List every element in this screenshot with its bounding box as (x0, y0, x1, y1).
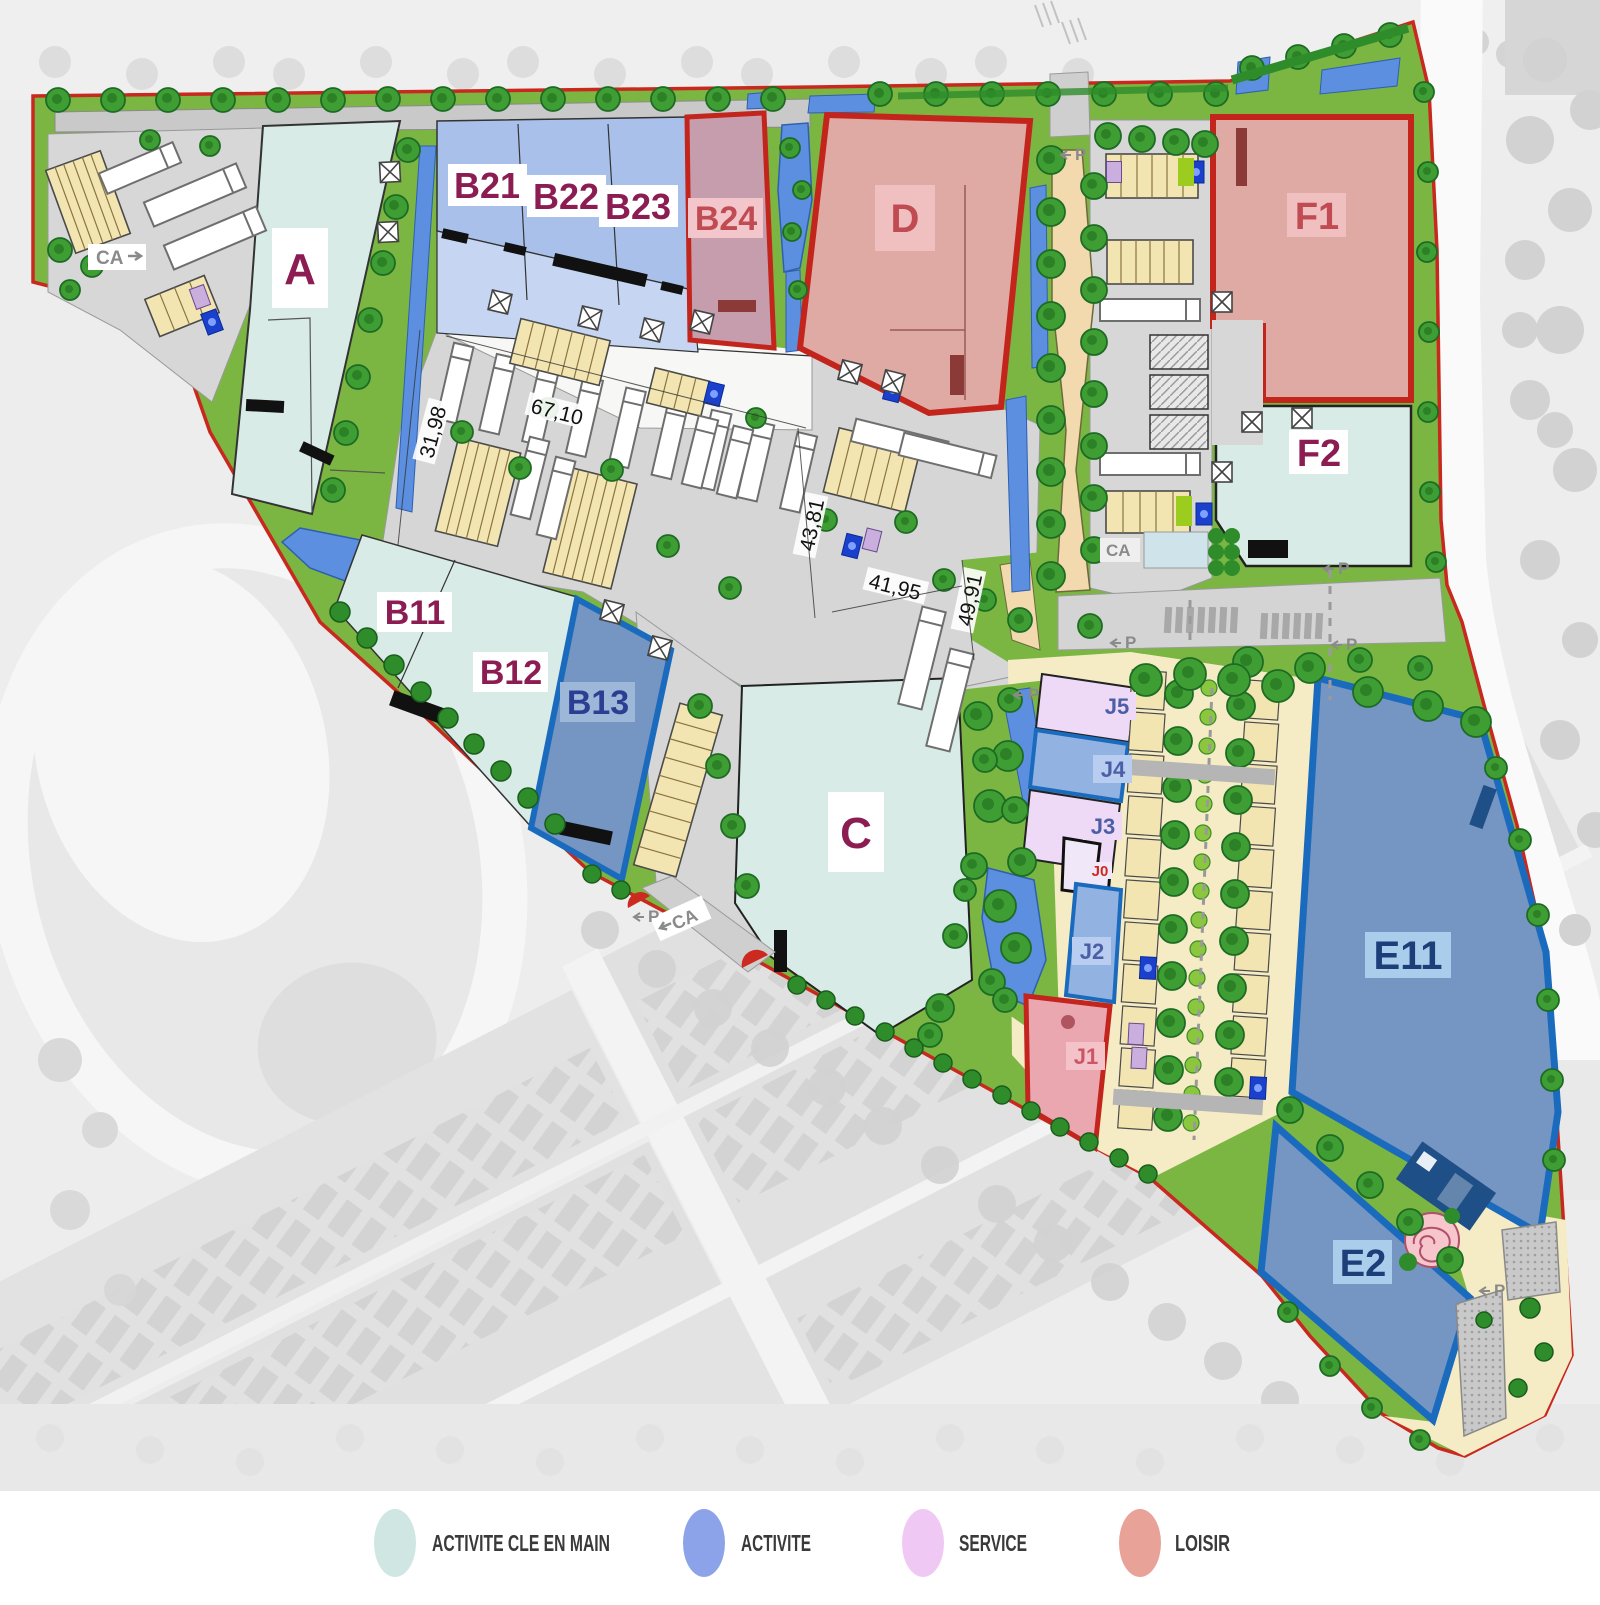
svg-text:D: D (891, 197, 920, 241)
svg-text:J3: J3 (1091, 814, 1115, 839)
svg-text:A: A (284, 245, 316, 294)
svg-text:J5: J5 (1105, 694, 1129, 719)
svg-text:B24: B24 (695, 200, 757, 238)
svg-text:CA: CA (1106, 541, 1131, 560)
svg-text:J1: J1 (1074, 1044, 1098, 1069)
svg-text:J2: J2 (1080, 939, 1104, 964)
svg-text:J4: J4 (1101, 757, 1126, 782)
svg-text:P: P (1075, 145, 1086, 164)
svg-text:P: P (1125, 633, 1136, 652)
svg-text:LOISIR: LOISIR (1175, 1530, 1230, 1556)
svg-text:P: P (1346, 635, 1357, 654)
svg-text:P: P (648, 907, 659, 926)
svg-text:P: P (1028, 685, 1039, 704)
svg-text:CA: CA (96, 248, 124, 269)
svg-text:SERVICE: SERVICE (959, 1530, 1027, 1556)
svg-text:B23: B23 (605, 186, 671, 227)
svg-text:F2: F2 (1297, 433, 1341, 475)
svg-text:B21: B21 (454, 165, 520, 206)
svg-text:E2: E2 (1340, 1243, 1386, 1285)
svg-text:ACTIVITE CLE EN MAIN: ACTIVITE CLE EN MAIN (432, 1530, 610, 1556)
svg-text:ACTIVITE: ACTIVITE (741, 1530, 811, 1556)
svg-text:B12: B12 (480, 654, 542, 692)
svg-text:P: P (1338, 559, 1349, 578)
svg-text:B13: B13 (567, 684, 629, 722)
svg-text:B22: B22 (533, 176, 599, 217)
svg-text:B11: B11 (385, 594, 446, 632)
svg-text:E11: E11 (1374, 934, 1443, 978)
svg-text:C: C (840, 809, 872, 858)
svg-text:J0: J0 (1092, 863, 1109, 880)
svg-text:P: P (1494, 1281, 1505, 1300)
svg-text:F1: F1 (1295, 196, 1339, 238)
